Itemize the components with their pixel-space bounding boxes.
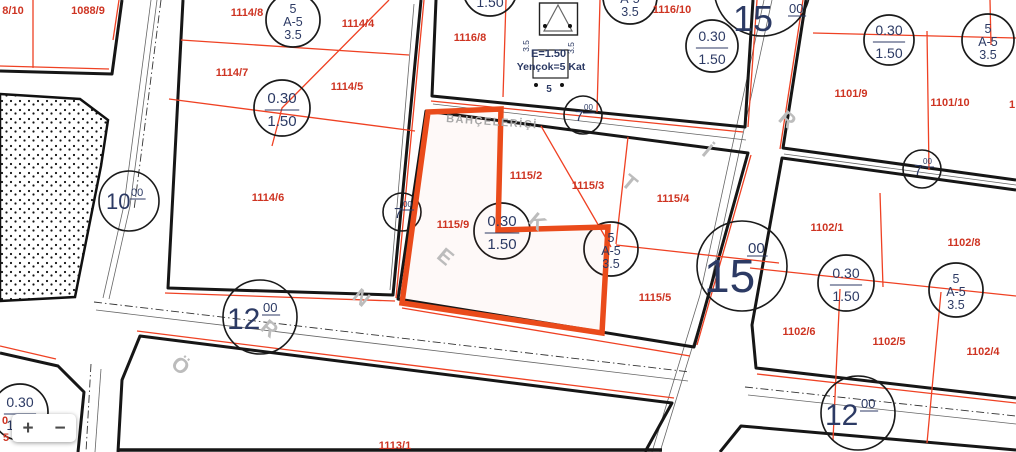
zoom-out-button[interactable]: −	[46, 419, 73, 438]
zoning-order-label: A-5	[978, 35, 998, 49]
parcel-label: 1113/1	[379, 440, 411, 452]
road-width-decimals: 00	[923, 157, 932, 166]
parcel-label: 1102/8	[947, 237, 980, 249]
kaks-value: 1.50	[476, 0, 503, 10]
road-width-value: 7	[394, 205, 402, 222]
road-width-value: 15	[704, 250, 755, 302]
taks-value: 0.30	[832, 265, 859, 281]
kaks-value: 1.50	[487, 236, 516, 253]
zoom-in-button[interactable]: +	[14, 419, 41, 438]
zoning-side-setback: 3.5	[284, 28, 301, 42]
zoning-order-label: A-5	[946, 285, 966, 299]
ratio-text: 0.301.50	[485, 213, 520, 253]
map-zoom-control: + −	[12, 414, 76, 442]
road-width-decimals: 00	[131, 187, 143, 199]
parcel-label: 1114/6	[252, 192, 284, 204]
parcel-label: 1102/6	[782, 326, 815, 338]
setback-left-label: 3.5	[521, 40, 531, 52]
map-canvas[interactable]: 3.5 3.5 E=1.50 Yençok=5 Kat 5 ÖRNEKTİR10…	[0, 0, 1016, 452]
parcel-label: 5	[3, 432, 9, 444]
envelope-corner-dot	[560, 83, 564, 87]
road-width-value: 7	[914, 162, 922, 179]
zoning-front-setback: 5	[608, 231, 615, 245]
parcel-label: 1101/9	[834, 88, 867, 100]
road-width-decimals: 00	[748, 240, 765, 257]
parcel-label: 1114/5	[331, 81, 363, 93]
zoning-side-setback: 3.5	[947, 298, 964, 312]
ratio-text: 0.301.50	[830, 265, 862, 304]
zoning-side-setback: 3.5	[602, 257, 619, 271]
zoning-side-setback: 3.5	[979, 48, 996, 62]
parcel-label: 1114/8	[231, 7, 263, 19]
parcel-label: 1102/5	[872, 336, 905, 348]
kaks-value: 1.50	[875, 45, 902, 61]
parcel-label: 1115/5	[639, 292, 671, 304]
ratio-text: 0.301.50	[265, 90, 300, 130]
parcel-label: 8/10	[2, 5, 23, 17]
parcel-label: 1115/3	[572, 180, 604, 192]
parcel-label: 1101/10	[930, 97, 969, 109]
parcel-label: 1114/7	[216, 67, 248, 79]
parcel-label: 1116/10	[653, 4, 692, 16]
road-width-value: 10	[106, 189, 130, 214]
envelope-corner-dot	[568, 24, 572, 28]
zoning-order-label: A-5	[283, 15, 303, 29]
front-setback-label: 5	[546, 84, 552, 95]
road-width-decimals: 00	[403, 200, 412, 209]
yencok-label: Yençok=5 Kat	[517, 61, 586, 73]
parcel-label: 1114/4	[342, 18, 375, 30]
zoning-front-setback: 5	[953, 272, 960, 286]
road-width-value: 12	[825, 399, 858, 432]
envelope-corner-dot	[534, 83, 538, 87]
taks-value: 0.30	[875, 22, 902, 38]
parcel-label: 1088/9	[71, 5, 105, 17]
parcel-label: 1115/4	[657, 193, 690, 205]
map-viewer: 3.5 3.5 E=1.50 Yençok=5 Kat 5 ÖRNEKTİR10…	[0, 0, 1016, 452]
parcel-label: 1102/4	[966, 346, 1000, 358]
road-width-decimals: 00	[263, 300, 277, 315]
parcel-label: 1115/2	[510, 170, 542, 182]
zoning-order-label: A-5	[601, 244, 621, 258]
parcel-label: 1115/9	[437, 219, 469, 231]
taks-value: 0.30	[267, 90, 296, 107]
road-width-decimals: 00	[861, 396, 875, 411]
kaks-value: 1.50	[267, 113, 296, 130]
parcel-label: 1	[1009, 99, 1015, 111]
parcel-label: 1116/8	[454, 32, 486, 44]
kaks-value: 1.50	[698, 51, 725, 67]
ratio-text: 0.301.50	[873, 22, 905, 61]
road-width-value: 7	[575, 108, 583, 125]
zoning-side-setback: 3.5	[621, 5, 638, 19]
taks-value: 0.30	[487, 213, 516, 230]
road-width-value: 15	[733, 0, 773, 39]
taks-value: 0.30	[6, 394, 33, 410]
parcel-label: 1102/1	[810, 222, 843, 234]
ratio-text: 0.301.50	[474, 0, 506, 10]
road-width-value: 12	[227, 303, 260, 336]
zoning-front-setback: 5	[985, 22, 992, 36]
taks-value: 0.30	[698, 28, 725, 44]
ratio-text: 0.301.50	[696, 28, 728, 67]
setback-right-label: 3.5	[566, 42, 576, 54]
kaks-value: 1.50	[832, 288, 859, 304]
parcel-label: 0	[2, 415, 8, 427]
emsal-label: E=1.50	[531, 48, 566, 60]
road-width-decimals: 00	[584, 103, 593, 112]
road-width-decimals: 00	[789, 1, 803, 16]
zoning-text: 5A-53.5	[620, 0, 640, 19]
zoning-front-setback: 5	[290, 2, 297, 16]
envelope-corner-dot	[543, 24, 547, 28]
